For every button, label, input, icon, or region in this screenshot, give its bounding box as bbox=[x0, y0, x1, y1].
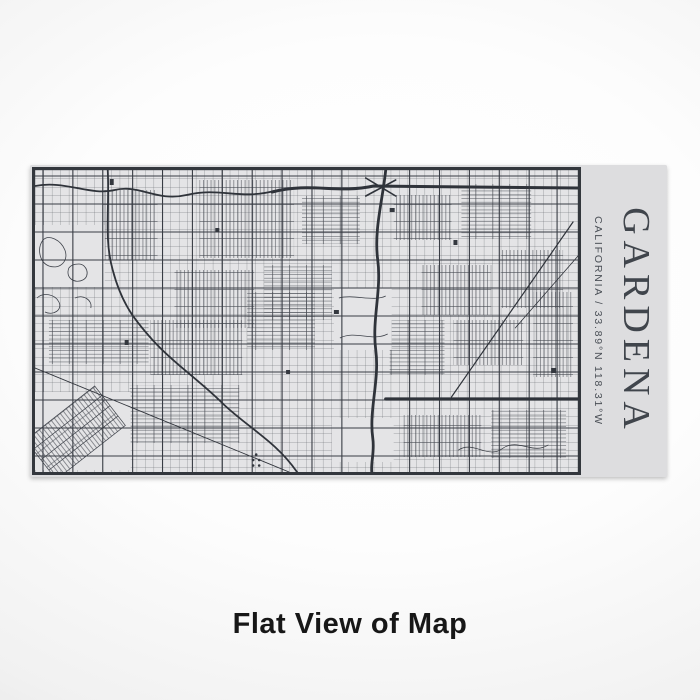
map-print-product: CALIFORNIA / 33.89°N 118.31°W GARDENA bbox=[30, 165, 667, 477]
view-caption: Flat View of Map bbox=[0, 608, 700, 641]
label-panel: CALIFORNIA / 33.89°N 118.31°W GARDENA bbox=[583, 165, 667, 477]
studio-background: CALIFORNIA / 33.89°N 118.31°W GARDENA Fl… bbox=[0, 0, 700, 700]
map-title: GARDENA bbox=[614, 207, 658, 435]
gardena-street-map bbox=[35, 170, 578, 472]
map-frame bbox=[30, 165, 583, 477]
map-subtitle-coordinates: CALIFORNIA / 33.89°N 118.31°W bbox=[592, 216, 604, 426]
map-frame-border bbox=[32, 167, 581, 475]
